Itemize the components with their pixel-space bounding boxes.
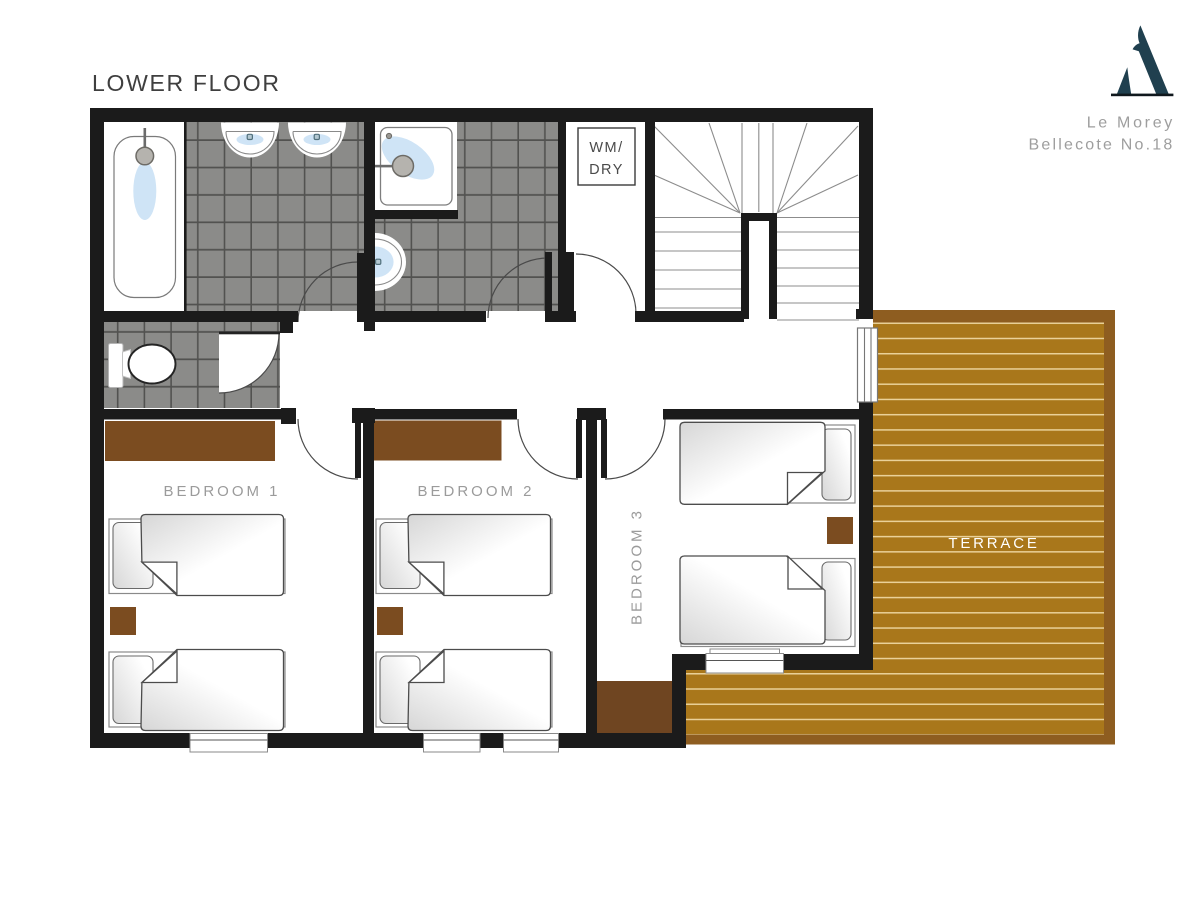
svg-text:LOWER FLOOR: LOWER FLOOR [92,70,281,96]
svg-text:BEDROOM 1: BEDROOM 1 [163,483,280,500]
svg-text:TERRACE: TERRACE [948,535,1039,552]
svg-text:DRY: DRY [589,162,624,178]
svg-text:BEDROOM 2: BEDROOM 2 [417,483,534,500]
svg-text:WM/: WM/ [589,140,623,156]
svg-text:BEDROOM 3: BEDROOM 3 [629,508,646,625]
svg-text:Le Morey: Le Morey [1087,115,1175,132]
svg-text:Bellecote No.18: Bellecote No.18 [1029,137,1175,154]
